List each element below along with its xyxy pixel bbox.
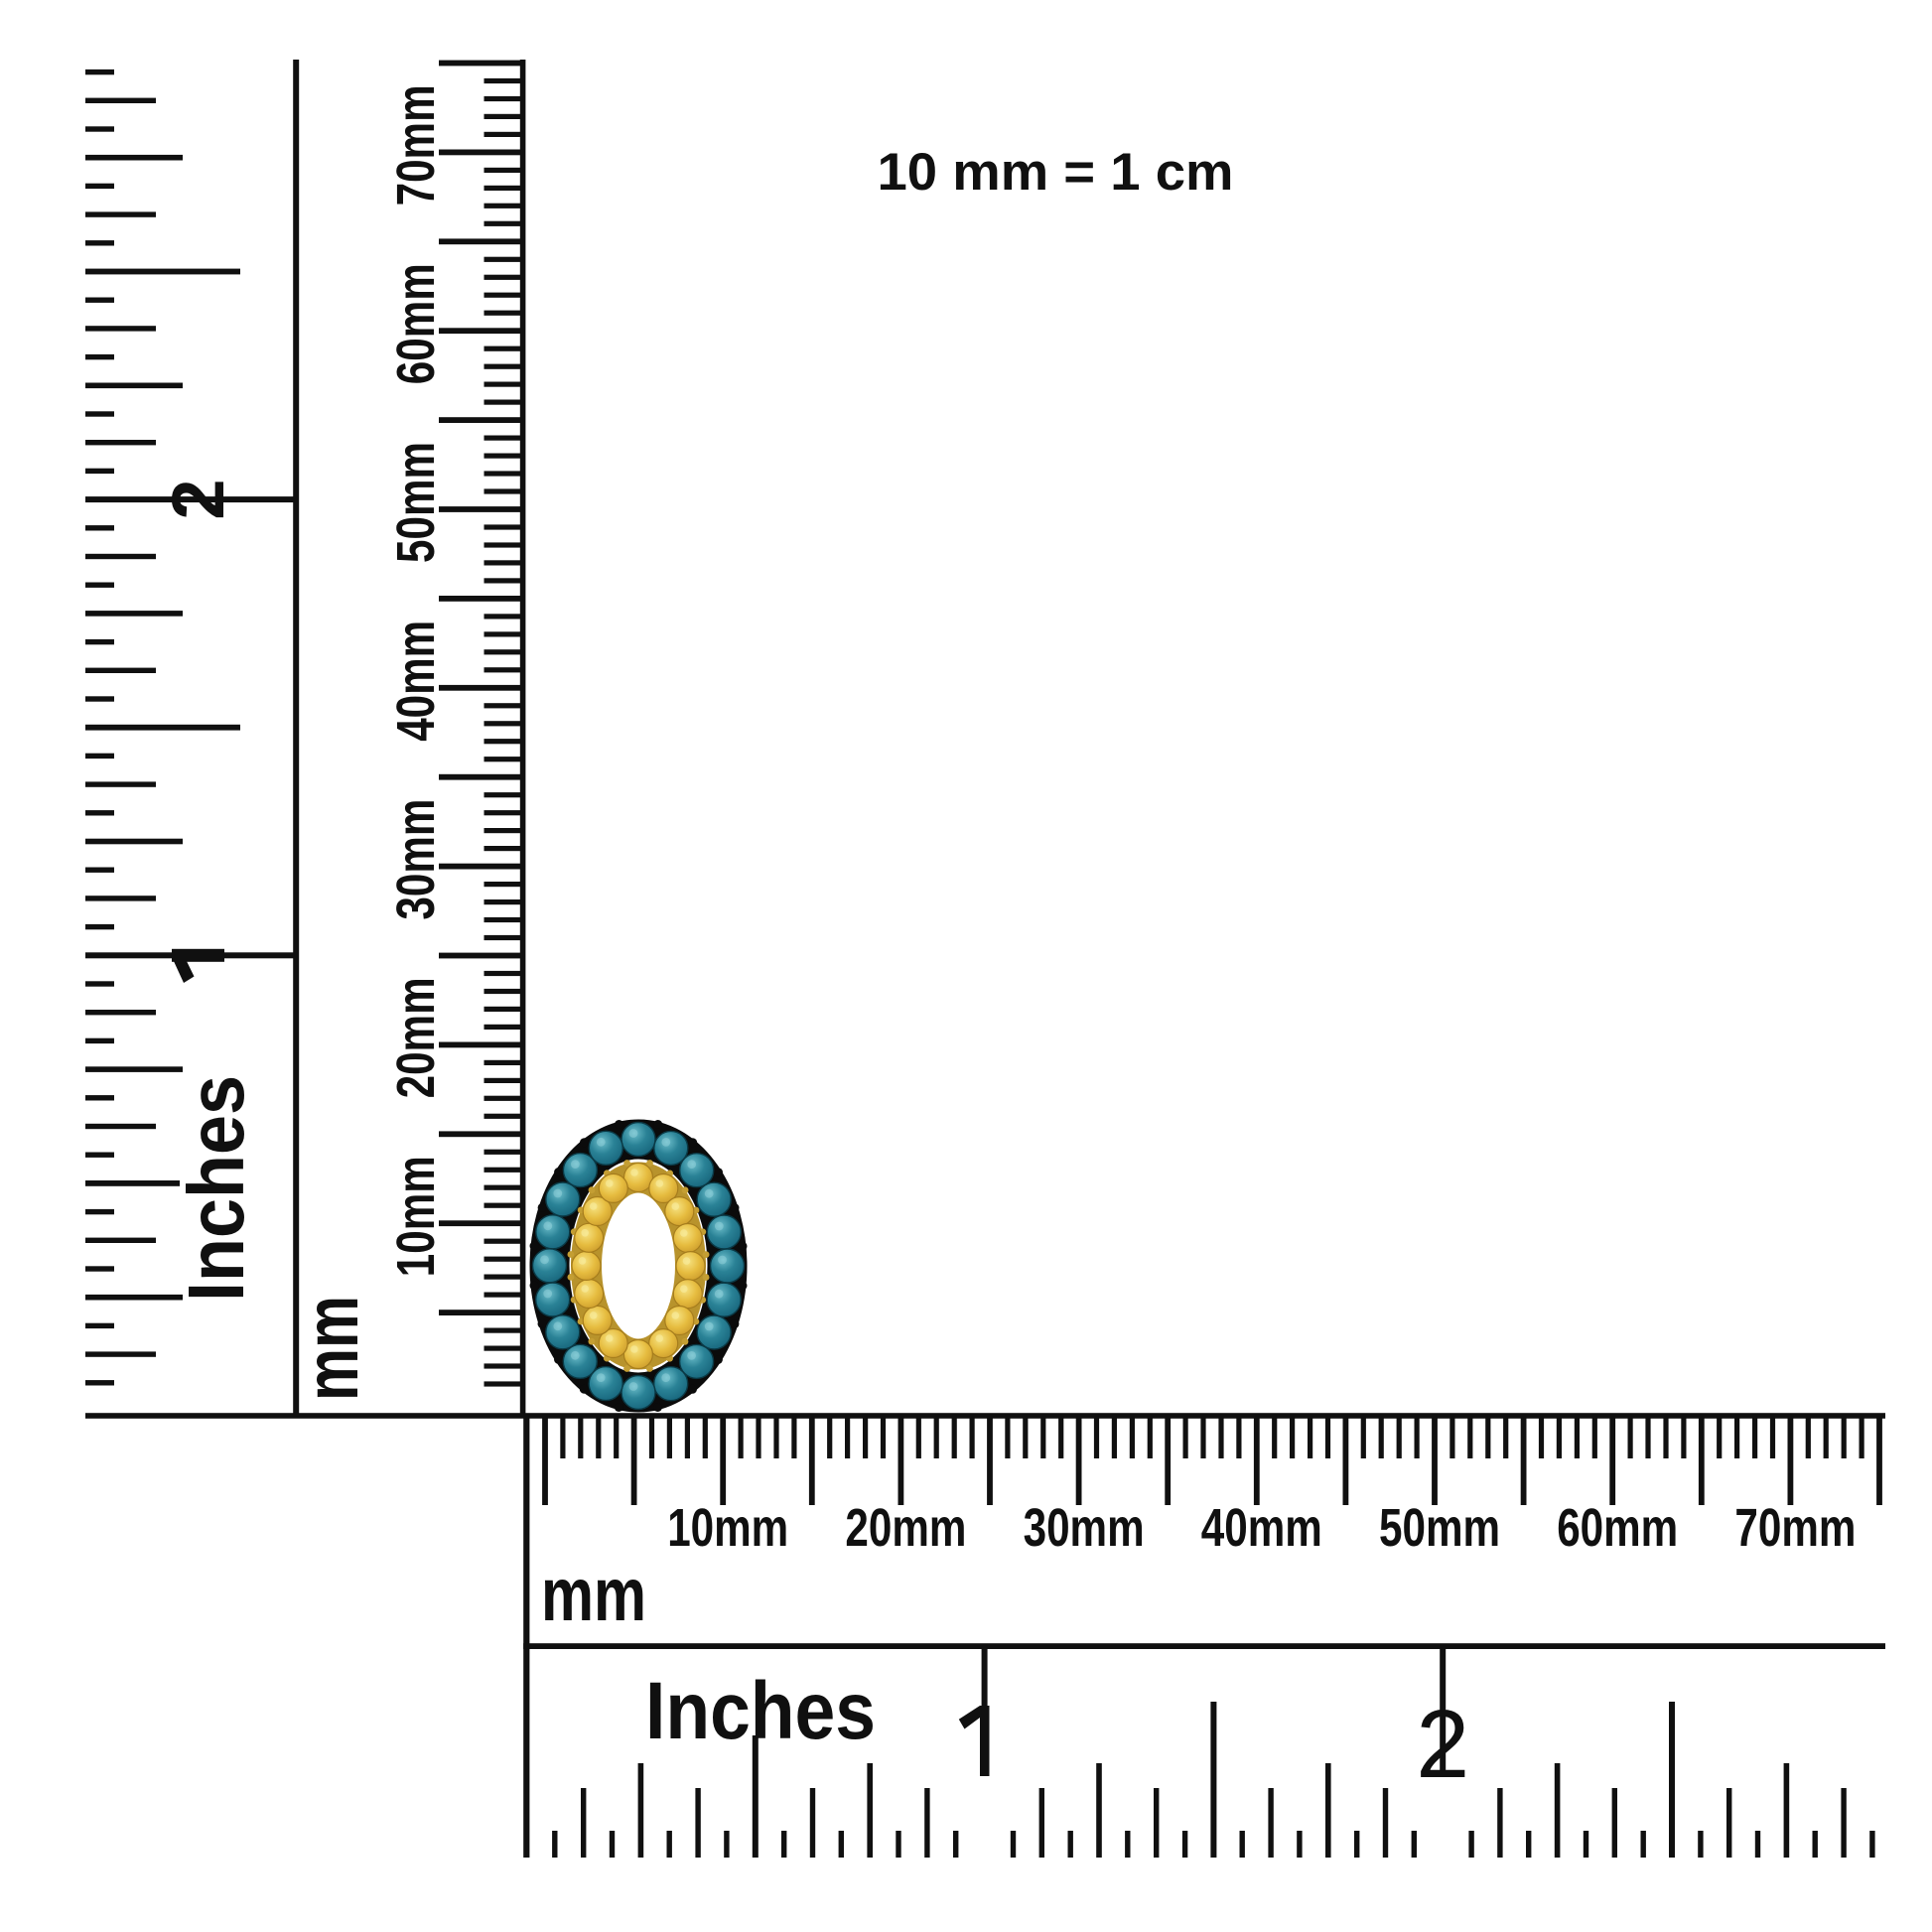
svg-text:Inches: Inches <box>172 1075 260 1302</box>
svg-text:20mm: 20mm <box>845 1498 966 1558</box>
svg-text:30mm: 30mm <box>386 799 446 920</box>
svg-text:70mm: 70mm <box>1734 1498 1856 1558</box>
svg-text:10mm: 10mm <box>667 1498 788 1558</box>
svg-text:mm: mm <box>541 1553 646 1637</box>
svg-text:60mm: 60mm <box>386 263 446 384</box>
svg-text:30mm: 30mm <box>1024 1498 1145 1558</box>
svg-text:20mm: 20mm <box>386 977 446 1098</box>
svg-text:70mm: 70mm <box>386 84 446 206</box>
svg-text:50mm: 50mm <box>1379 1498 1500 1558</box>
svg-text:60mm: 60mm <box>1557 1498 1678 1558</box>
svg-text:2: 2 <box>157 480 239 520</box>
svg-text:mm: mm <box>290 1296 374 1401</box>
svg-text:10 mm = 1 cm: 10 mm = 1 cm <box>878 143 1234 202</box>
svg-text:Inches: Inches <box>645 1666 876 1756</box>
svg-text:40mm: 40mm <box>386 621 446 742</box>
svg-text:2: 2 <box>1416 1690 1469 1798</box>
svg-text:40mm: 40mm <box>1201 1498 1322 1558</box>
svg-text:50mm: 50mm <box>386 442 446 563</box>
svg-text:10mm: 10mm <box>386 1156 446 1277</box>
